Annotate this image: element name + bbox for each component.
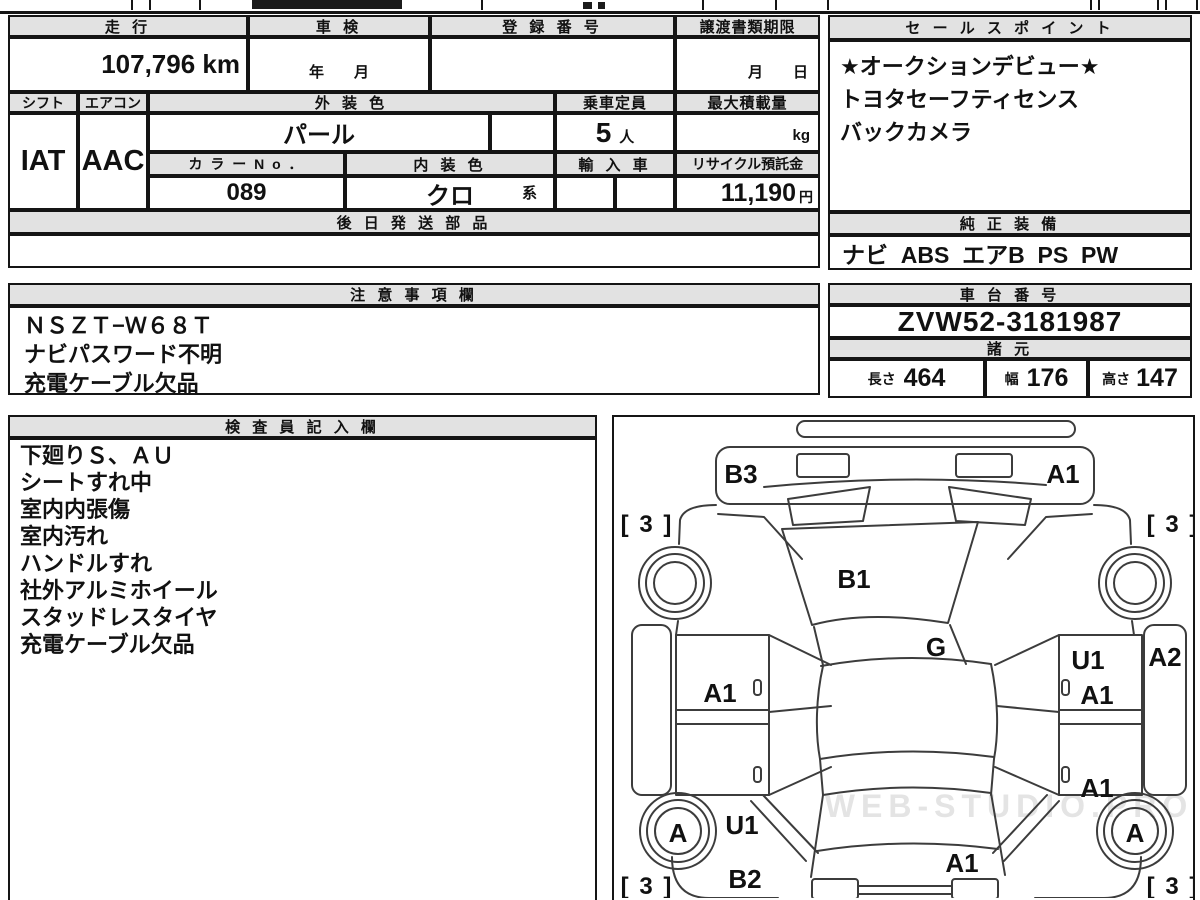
shaken-date-text: 年 月	[309, 61, 369, 82]
right-front-door-handle	[1062, 680, 1069, 695]
hood-panel	[782, 522, 978, 625]
shaken-value: 年 月	[248, 37, 430, 92]
spec-width-label: 幅	[1005, 369, 1019, 389]
label-right-rocker: A2	[1148, 642, 1181, 672]
spec-length-label: 長さ	[868, 369, 896, 389]
transfer-deadline-value: 月 日	[675, 37, 820, 92]
label-front-bumper-left: B3	[724, 459, 757, 489]
left-cowl-vent	[788, 487, 870, 525]
sales-point-line-2: トヨタセーフティセンス	[840, 83, 1190, 116]
inspector-line-4: 室内汚れ	[20, 523, 595, 550]
left-rocker-panel	[632, 625, 671, 795]
color-no-value: 089	[148, 176, 345, 210]
header-mileage: 走 行	[8, 15, 248, 37]
notes-line-1: ＮＳＺＴ−Ｗ６８Ｔ	[24, 311, 818, 340]
label-front-bumper-right: A1	[1046, 459, 1079, 489]
notes-line-2: ナビパスワード不明	[24, 340, 818, 369]
specs-title: 諸 元	[828, 338, 1192, 359]
label-right-rear-door: A1	[1080, 773, 1113, 803]
header-aircon: エアコン	[78, 92, 148, 113]
front-bumper	[716, 447, 1094, 504]
right-tail-light	[952, 879, 998, 898]
right-door-sill-lines	[997, 706, 1142, 724]
label-right-rear-wheel: A	[1126, 818, 1145, 848]
shift-value: IAT	[8, 113, 78, 210]
header-transfer-deadline: 譲渡書類期限	[675, 15, 820, 37]
interior-color-suffix: 系	[522, 182, 537, 203]
right-rear-door-handle	[1062, 767, 1069, 782]
chassis-value: ZVW52-3181987	[828, 305, 1192, 338]
import-car-cell-2	[615, 176, 675, 210]
spec-width-value: 176	[1027, 364, 1069, 393]
left-rear-door-handle	[754, 767, 761, 782]
sales-point-body: ★オークションデビュー★ トヨタセーフティセンス バックカメラ	[828, 40, 1192, 212]
spec-length-value: 464	[904, 364, 946, 393]
front-roof-strip	[797, 421, 1075, 437]
front-left-wheel	[639, 547, 711, 619]
equipment-title: 純 正 装 備	[828, 212, 1192, 235]
right-rear-bumper-corner	[1035, 857, 1141, 898]
interior-color-text: クロ	[426, 176, 474, 211]
left-headlight	[797, 454, 849, 477]
exterior-color-spare	[490, 113, 555, 152]
tail-bar	[858, 886, 952, 894]
later-parts-value	[8, 234, 820, 268]
notes-title: 注 意 事 項 欄	[8, 283, 820, 306]
label-tailgate: A1	[945, 848, 978, 878]
transfer-deadline-text: 月 日	[748, 61, 808, 82]
sales-point-line-3: バックカメラ	[840, 116, 1190, 149]
sales-point-line-1: ★オークションデビュー★	[840, 50, 1190, 83]
capacity-value: 5 人	[555, 113, 675, 152]
equipment-text: ナビ ABS エアB PS PW	[842, 236, 1118, 270]
right-door-connectors	[995, 635, 1059, 795]
label-rear-left-tire: [ 3 ]	[621, 873, 674, 898]
header-shaken: 車 検	[248, 15, 430, 37]
interior-color-value: クロ 系	[345, 176, 555, 210]
label-rear-right-tire: [ 3 ]	[1147, 873, 1193, 898]
cabin-right-edge	[991, 664, 997, 795]
header-max-load: 最大積載量	[675, 92, 820, 113]
label-left-rear-bumper: B2	[728, 864, 761, 894]
left-rear-bumper-corner	[672, 857, 778, 898]
label-left-rear-wheel: A	[669, 818, 688, 848]
right-headlight	[956, 454, 1012, 477]
inspector-line-6: 社外アルミホイール	[20, 577, 595, 604]
header-color-no: カ ラ ー N o ．	[148, 152, 345, 176]
chassis-title: 車 台 番 号	[828, 283, 1192, 305]
inspector-line-7: スタッドレスタイヤ	[20, 604, 595, 631]
clipped-top-row	[0, 0, 1200, 14]
notes-line-3: 充電ケーブル欠品	[24, 369, 818, 398]
capacity-number: 5	[596, 117, 612, 149]
cabin-left-edge	[817, 666, 823, 795]
left-tail-light	[812, 879, 858, 898]
spec-length: 長さ 464	[828, 359, 985, 398]
left-door-sill-lines	[676, 706, 831, 724]
inspector-line-3: 室内内張傷	[20, 496, 595, 523]
inspector-body: 下廻りＳ、ＡＵ シートすれ中 室内内張傷 室内汚れ ハンドルすれ 社外アルミホイ…	[8, 438, 597, 900]
sales-point-title: セ ー ル ス ポ イ ン ト	[828, 15, 1192, 40]
recycle-deposit-value: 11,190 円	[675, 176, 820, 210]
front-right-wheel	[1099, 547, 1171, 619]
label-right-front-door-u: U1	[1071, 645, 1104, 675]
aircon-value: AAC	[78, 113, 148, 210]
left-front-door-handle	[754, 680, 761, 695]
label-front-right-tire: [ 3 ]	[1147, 511, 1193, 538]
registration-no-value	[430, 37, 675, 92]
header-capacity: 乗車定員	[555, 92, 675, 113]
inspector-line-8: 充電ケーブル欠品	[20, 631, 595, 658]
exterior-color-value: パール	[148, 113, 490, 152]
capacity-unit: 人	[619, 118, 634, 147]
header-later-parts: 後 日 発 送 部 品	[8, 210, 820, 234]
left-rear-quarter-lines	[751, 795, 818, 861]
right-front-fender	[1008, 505, 1134, 635]
header-recycle-deposit: リサイクル預託金	[675, 152, 820, 176]
header-import-car: 輸 入 車	[555, 152, 675, 176]
max-load-unit: kg	[792, 127, 810, 144]
damage-diagram-box: WEB-STUDIO.PRO	[612, 415, 1195, 900]
spec-height-value: 147	[1136, 364, 1178, 393]
spec-height-label: 高さ	[1102, 369, 1130, 389]
inspector-title: 検 査 員 記 入 欄	[8, 415, 597, 438]
auction-sheet: 走 行 車 検 登 録 番 号 譲渡書類期限 107,796 km 年 月 月 …	[0, 0, 1200, 900]
import-car-cell-1	[555, 176, 615, 210]
notes-body: ＮＳＺＴ−Ｗ６８Ｔ ナビパスワード不明 充電ケーブル欠品	[8, 306, 820, 395]
right-cowl-vent	[949, 487, 1031, 525]
spec-height: 高さ 147	[1088, 359, 1192, 398]
bumper-lip-line	[764, 479, 1046, 487]
label-left-rear-quarter: U1	[725, 810, 758, 840]
recycle-deposit-number: 11,190	[721, 179, 796, 208]
spec-width: 幅 176	[985, 359, 1088, 398]
label-right-front-door-a: A1	[1080, 680, 1113, 710]
mileage-value: 107,796 km	[8, 37, 248, 92]
inspector-line-2: シートすれ中	[20, 469, 595, 496]
label-left-front-door: A1	[703, 678, 736, 708]
label-glass: G	[926, 632, 946, 662]
inspector-line-1: 下廻りＳ、ＡＵ	[20, 442, 595, 469]
left-front-fender	[676, 505, 802, 635]
inspector-line-5: ハンドルすれ	[20, 550, 595, 577]
roof-rear-arc	[820, 751, 994, 759]
header-interior-color: 内 装 色	[345, 152, 555, 176]
clipped-text	[252, 0, 402, 9]
header-shift: シフト	[8, 92, 78, 113]
header-registration-no: 登 録 番 号	[430, 15, 675, 37]
label-hood: B1	[837, 564, 870, 594]
left-door-block	[676, 635, 769, 795]
max-load-value: kg	[675, 113, 820, 152]
label-front-left-tire: [ 3 ]	[621, 511, 674, 538]
equipment-body: ナビ ABS エアB PS PW	[828, 235, 1192, 270]
header-exterior-color: 外 装 色	[148, 92, 555, 113]
recycle-deposit-unit: 円	[796, 179, 813, 207]
car-damage-diagram: WEB-STUDIO.PRO	[614, 417, 1193, 898]
